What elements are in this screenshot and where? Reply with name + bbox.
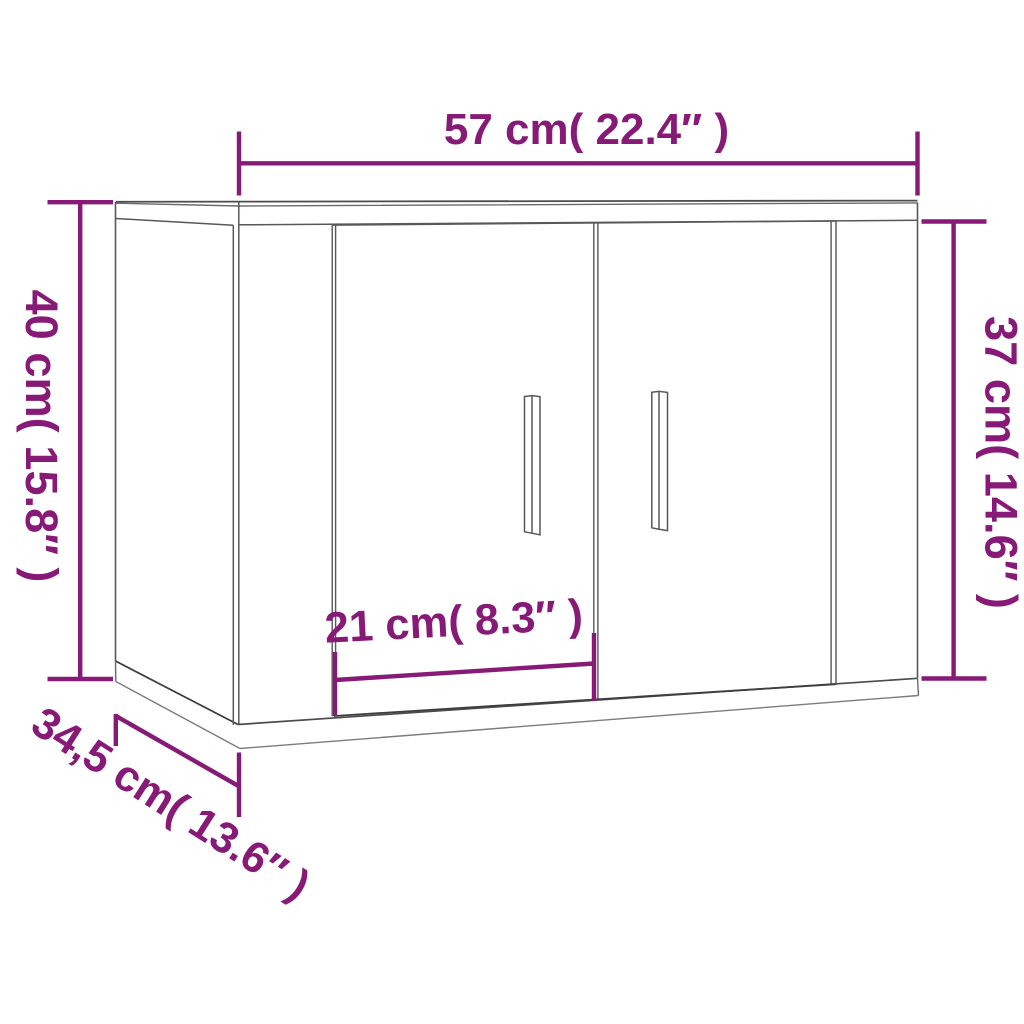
svg-text:57 cm( 22.4″ ): 57 cm( 22.4″ ): [444, 105, 729, 154]
svg-text:37 cm( 14.6″ ): 37 cm( 14.6″ ): [976, 316, 1024, 609]
svg-text:40 cm( 15.8″ ): 40 cm( 15.8″ ): [16, 290, 67, 583]
